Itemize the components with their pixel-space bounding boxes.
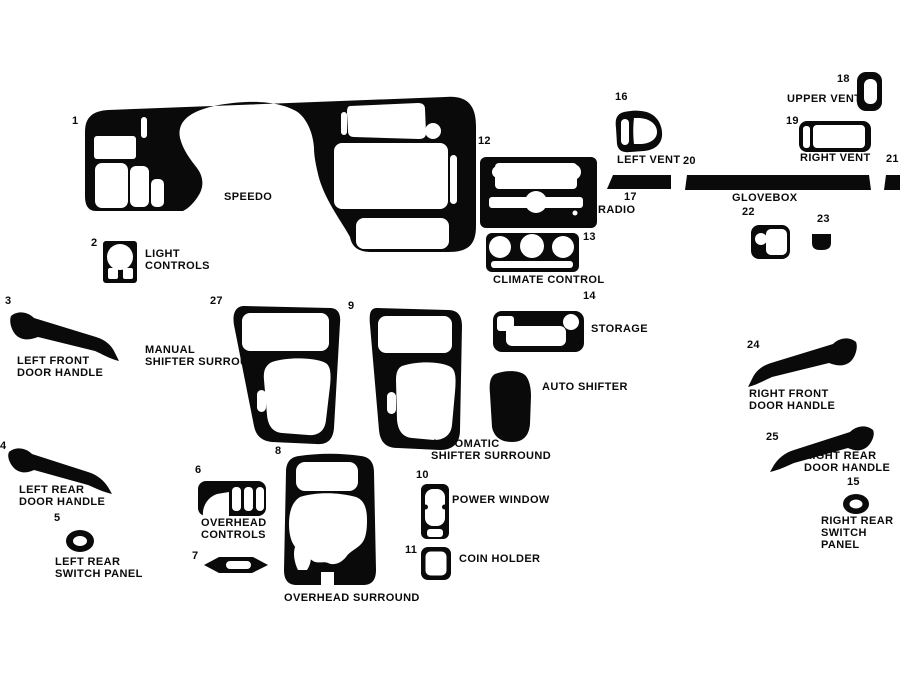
part-24-label: RIGHT FRONT DOOR HANDLE — [749, 388, 835, 412]
part-18-number: 18 — [837, 74, 850, 85]
strip-17-shape — [607, 175, 671, 189]
part-19-number: 19 — [786, 116, 799, 127]
part-16-label: LEFT VENT — [617, 154, 681, 166]
part-7-number: 7 — [192, 551, 198, 562]
part-1-number: 1 — [72, 116, 78, 127]
part-6-label: OVERHEAD CONTROLS — [201, 517, 267, 541]
part-15-label: RIGHT REAR SWITCH PANEL — [821, 515, 900, 551]
storage-shape — [493, 311, 584, 352]
part-17-number: 17 — [624, 192, 637, 203]
part-8-number: 8 — [275, 446, 281, 457]
dash-kit-diagram: 1 2 3 4 5 6 7 8 9 10 11 12 13 14 15 16 1… — [0, 0, 900, 675]
part-20-number: 20 — [683, 156, 696, 167]
part-1-label: SPEEDO — [224, 191, 272, 203]
power-window-shape — [421, 484, 449, 539]
glovebox-strip-shape — [685, 175, 871, 190]
part-2-number: 2 — [91, 238, 97, 249]
auto-shifter-shape — [490, 371, 531, 442]
radio-shape — [480, 157, 597, 228]
part-2-label: LIGHT CONTROLS — [145, 248, 210, 272]
part-20-label: GLOVEBOX — [732, 192, 798, 204]
strip-7-shape — [204, 557, 268, 573]
part-12-label: RADIO — [598, 204, 635, 216]
part-6-number: 6 — [195, 465, 201, 476]
part-8-label: OVERHEAD SURROUND — [284, 592, 420, 604]
part-9-number: 9 — [348, 301, 354, 312]
overhead-controls-shape — [198, 481, 266, 516]
part-5-label: LEFT REAR SWITCH PANEL — [55, 556, 143, 580]
pocket-22-shape — [751, 225, 790, 259]
climate-control-shape — [486, 233, 579, 272]
manual-shifter-surround-shape — [233, 306, 340, 444]
part-18-label: UPPER VENT — [787, 93, 861, 105]
overhead-surround-shape — [284, 454, 376, 586]
left-front-door-handle-shape — [10, 312, 119, 361]
part-12-number: 12 — [478, 136, 491, 147]
strip-21-shape — [884, 175, 900, 190]
part-15-number: 15 — [847, 477, 860, 488]
part-13-label: CLIMATE CONTROL — [493, 274, 605, 286]
part-14-number: 14 — [583, 291, 596, 302]
light-controls-shape — [103, 241, 137, 283]
right-rear-switch-panel-shape — [843, 494, 869, 514]
part-4-number: 4 — [0, 441, 6, 452]
pocket-23-shape — [812, 234, 831, 250]
left-vent-shape — [616, 111, 662, 153]
right-vent-shape — [799, 121, 871, 152]
part-3-label: LEFT FRONT DOOR HANDLE — [17, 355, 103, 379]
part-21-number: 21 — [886, 154, 899, 165]
part-14-label: STORAGE — [591, 323, 648, 335]
part-10-number: 10 — [416, 470, 429, 481]
part-11-label: COIN HOLDER — [459, 553, 540, 565]
automatic-shifter-surround-shape — [370, 308, 462, 450]
part-4-label: LEFT REAR DOOR HANDLE — [19, 484, 105, 508]
part-27-number: 27 — [210, 296, 223, 307]
part-23-number: 23 — [817, 214, 830, 225]
part-25-number: 25 — [766, 432, 779, 443]
part-9-label: AUTOMATIC SHIFTER SURROUND — [431, 438, 551, 462]
part-25-label: RIGHT REAR DOOR HANDLE — [804, 450, 890, 474]
coin-holder-shape — [421, 547, 451, 580]
right-front-door-handle-shape — [748, 338, 857, 387]
auto-shifter-label: AUTO SHIFTER — [542, 381, 628, 393]
part-22-number: 22 — [742, 207, 755, 218]
part-27-label: MANUAL SHIFTER SURROUND — [145, 344, 265, 368]
part-10-label: POWER WINDOW — [452, 494, 550, 506]
part-3-number: 3 — [5, 296, 11, 307]
part-5-number: 5 — [54, 513, 60, 524]
part-19-label: RIGHT VENT — [800, 152, 871, 164]
left-rear-switch-panel-shape — [66, 530, 94, 552]
part-16-number: 16 — [615, 92, 628, 103]
part-24-number: 24 — [747, 340, 760, 351]
upper-vent-shape — [857, 72, 882, 111]
speedo-panel-shape — [85, 97, 476, 252]
part-11-number: 11 — [405, 545, 417, 556]
part-13-number: 13 — [583, 232, 596, 243]
